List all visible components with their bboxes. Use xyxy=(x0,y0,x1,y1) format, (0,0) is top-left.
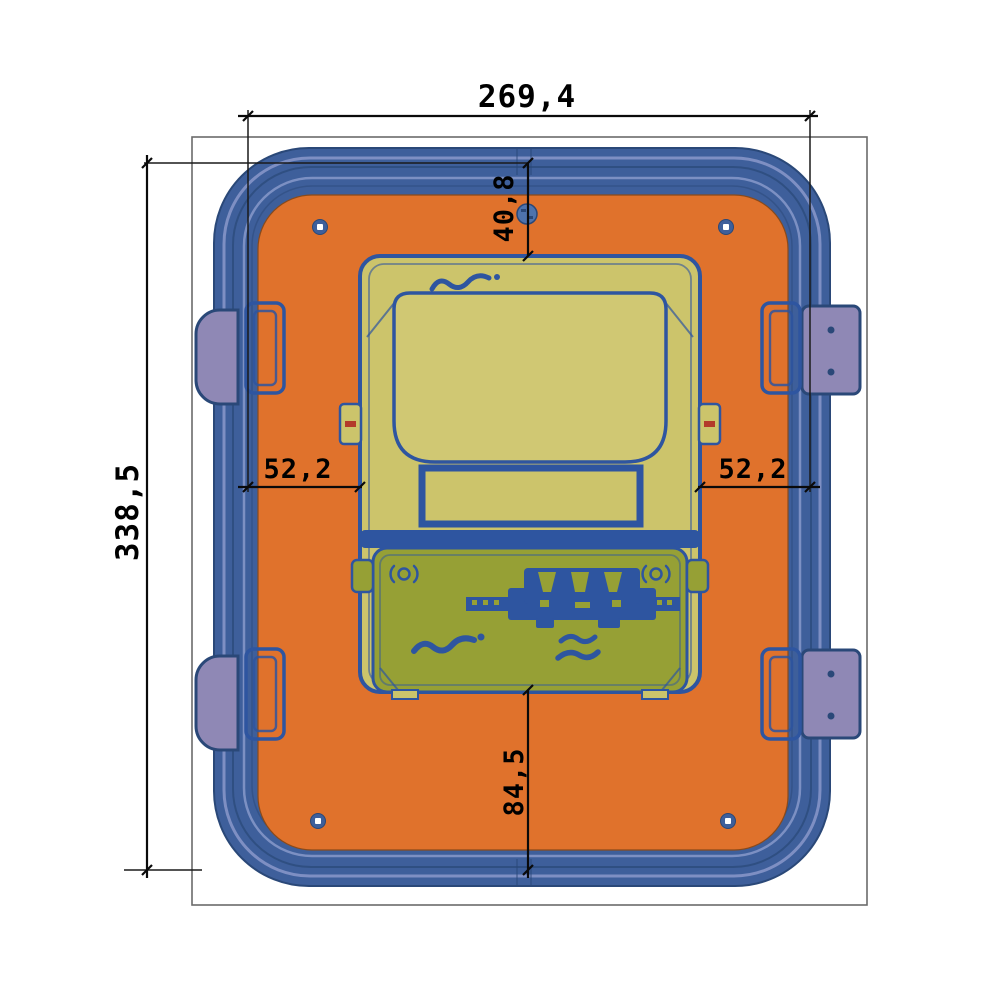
dim-label-meter-right-offset: 52,2 xyxy=(718,454,787,485)
dim-label-meter-bottom-offset: 84,5 xyxy=(499,747,530,816)
hinge-left-bottom xyxy=(196,656,238,750)
dim-label-overall-height: 338,5 xyxy=(110,463,146,561)
meter-foot-right xyxy=(642,690,668,699)
screw-hole-icon-top-right xyxy=(719,220,734,235)
latch-screw-icon xyxy=(828,713,835,720)
meter-foot-left xyxy=(392,690,418,699)
side-tab-left xyxy=(352,560,373,592)
screw-hole-icon-top-left xyxy=(313,220,328,235)
side-tab-right xyxy=(687,560,708,592)
mounting-ear-right xyxy=(699,404,720,444)
mounting-ear-left xyxy=(340,404,361,444)
enclosure-drawing: 269,4 338,5 40,8 84,5 52,2 52,2 xyxy=(0,0,1000,1000)
technical-drawing-page: 269,4 338,5 40,8 84,5 52,2 52,2 xyxy=(0,0,1000,1000)
dim-label-meter-top-offset: 40,8 xyxy=(489,173,520,242)
latch-screw-icon xyxy=(828,369,835,376)
dim-label-overall-width: 269,4 xyxy=(478,79,576,115)
meter-device xyxy=(340,256,720,699)
latch-screw-icon xyxy=(828,671,835,678)
dim-label-meter-left-offset: 52,2 xyxy=(263,454,332,485)
meter-seam-band xyxy=(361,530,699,548)
meter-nameplate-window xyxy=(422,468,640,524)
latch-right-bottom xyxy=(802,650,860,738)
meter-display xyxy=(394,293,666,462)
screw-hole-icon-bottom-left xyxy=(311,814,326,829)
screw-hole-icon-bottom-right xyxy=(721,814,736,829)
hinge-left-top xyxy=(196,310,238,404)
latch-screw-icon xyxy=(828,327,835,334)
